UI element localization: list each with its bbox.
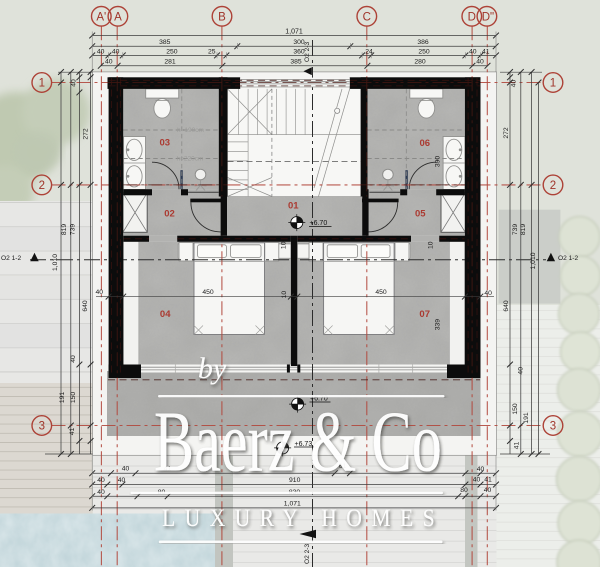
svg-text:41: 41 bbox=[482, 48, 490, 55]
svg-text:05: 05 bbox=[415, 208, 426, 219]
svg-text:h=220cm: h=220cm bbox=[177, 155, 204, 162]
svg-text:O2 1-2: O2 1-2 bbox=[1, 255, 21, 262]
svg-text:10: 10 bbox=[428, 241, 435, 249]
svg-text:360: 360 bbox=[293, 48, 305, 55]
svg-text:250: 250 bbox=[418, 48, 430, 55]
svg-text:272: 272 bbox=[503, 127, 510, 139]
svg-text:40: 40 bbox=[477, 466, 485, 473]
svg-text:10: 10 bbox=[280, 241, 287, 249]
svg-text:41: 41 bbox=[484, 477, 492, 484]
svg-text:739: 739 bbox=[512, 224, 519, 236]
svg-text:B: B bbox=[218, 11, 226, 23]
svg-text:41: 41 bbox=[69, 428, 76, 436]
svg-text:1,010: 1,010 bbox=[530, 252, 537, 269]
svg-text:280: 280 bbox=[414, 59, 426, 66]
svg-text:3: 3 bbox=[550, 421, 556, 433]
svg-text:10: 10 bbox=[281, 291, 288, 299]
svg-text:40: 40 bbox=[469, 48, 477, 55]
svg-text:03: 03 bbox=[160, 137, 171, 148]
svg-text:40: 40 bbox=[118, 477, 126, 484]
svg-text:191: 191 bbox=[59, 392, 66, 404]
svg-text:40: 40 bbox=[112, 48, 120, 55]
svg-text:D: D bbox=[468, 11, 476, 23]
svg-text:40: 40 bbox=[484, 290, 492, 297]
svg-text:A': A' bbox=[96, 11, 106, 23]
svg-text:h=190cm: h=190cm bbox=[177, 127, 204, 134]
svg-text:739: 739 bbox=[70, 224, 77, 236]
svg-text:40: 40 bbox=[511, 80, 518, 88]
svg-text:24: 24 bbox=[365, 48, 373, 55]
svg-text:1,010: 1,010 bbox=[52, 254, 59, 271]
svg-text:40: 40 bbox=[97, 489, 105, 496]
svg-text:1: 1 bbox=[550, 78, 556, 90]
svg-text:O2 2-3: O2 2-3 bbox=[304, 42, 311, 62]
svg-text:07: 07 bbox=[419, 309, 430, 320]
svg-text:819: 819 bbox=[61, 224, 68, 236]
svg-text:40: 40 bbox=[105, 59, 113, 66]
svg-text:41: 41 bbox=[514, 442, 521, 450]
svg-text:01: 01 bbox=[288, 201, 299, 212]
svg-text:386: 386 bbox=[417, 39, 429, 46]
svg-text:LUXURY HOMES: LUXURY HOMES bbox=[162, 503, 444, 532]
svg-text:281: 281 bbox=[164, 59, 176, 66]
svg-text:3: 3 bbox=[39, 421, 45, 433]
svg-text:O2 1-2: O2 1-2 bbox=[558, 255, 578, 262]
svg-text:450: 450 bbox=[202, 289, 214, 296]
svg-text:40: 40 bbox=[97, 48, 105, 55]
svg-text:40: 40 bbox=[122, 466, 130, 473]
svg-text:02: 02 bbox=[164, 208, 175, 219]
svg-text:04: 04 bbox=[160, 309, 171, 320]
svg-text:06: 06 bbox=[420, 138, 431, 149]
svg-text:40: 40 bbox=[518, 367, 525, 375]
svg-text:385: 385 bbox=[290, 59, 302, 66]
svg-text:339: 339 bbox=[435, 319, 442, 331]
svg-text:Baerz & Co: Baerz & Co bbox=[154, 393, 442, 490]
svg-text:80: 80 bbox=[460, 487, 468, 494]
svg-text:40: 40 bbox=[484, 487, 492, 494]
svg-text:40: 40 bbox=[476, 59, 484, 66]
svg-text:C: C bbox=[363, 11, 371, 23]
svg-text:2: 2 bbox=[550, 180, 556, 192]
svg-text:40: 40 bbox=[97, 477, 105, 484]
svg-text:640: 640 bbox=[503, 300, 510, 312]
svg-text:819: 819 bbox=[520, 224, 527, 236]
svg-text:25: 25 bbox=[208, 48, 216, 55]
svg-text:40: 40 bbox=[96, 289, 104, 296]
svg-text:640: 640 bbox=[82, 300, 89, 312]
svg-text:250: 250 bbox=[166, 48, 178, 55]
svg-text:by: by bbox=[198, 352, 227, 385]
svg-text:D": D" bbox=[482, 11, 494, 23]
svg-text:150: 150 bbox=[512, 403, 519, 415]
svg-text:2: 2 bbox=[39, 180, 45, 192]
svg-text:A: A bbox=[114, 11, 122, 23]
svg-text:40: 40 bbox=[473, 477, 481, 484]
svg-text:272: 272 bbox=[83, 128, 90, 140]
svg-text:191: 191 bbox=[523, 412, 530, 424]
svg-text:450: 450 bbox=[375, 289, 387, 296]
svg-text:385: 385 bbox=[159, 39, 171, 46]
svg-text:O2 2-3: O2 2-3 bbox=[304, 544, 311, 564]
svg-text:+6.70: +6.70 bbox=[310, 220, 328, 227]
svg-text:300: 300 bbox=[293, 39, 305, 46]
svg-text:1,071: 1,071 bbox=[285, 28, 303, 35]
svg-text:150: 150 bbox=[70, 392, 77, 404]
svg-text:1: 1 bbox=[39, 78, 45, 90]
svg-text:40: 40 bbox=[71, 79, 78, 87]
svg-text:40: 40 bbox=[70, 355, 77, 363]
svg-text:390: 390 bbox=[435, 156, 442, 168]
